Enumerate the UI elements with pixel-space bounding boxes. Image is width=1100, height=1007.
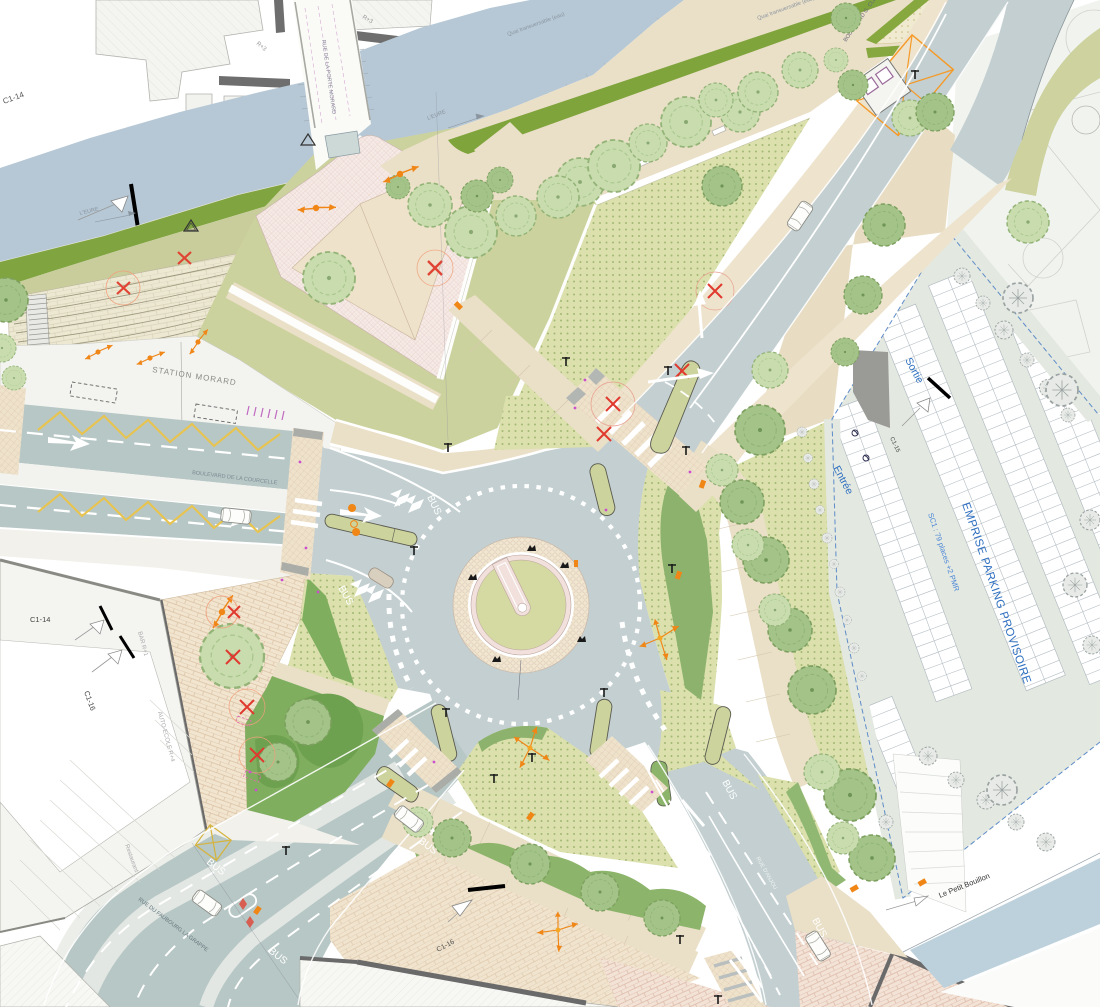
svg-text:C1-14: C1-14 (30, 615, 50, 624)
